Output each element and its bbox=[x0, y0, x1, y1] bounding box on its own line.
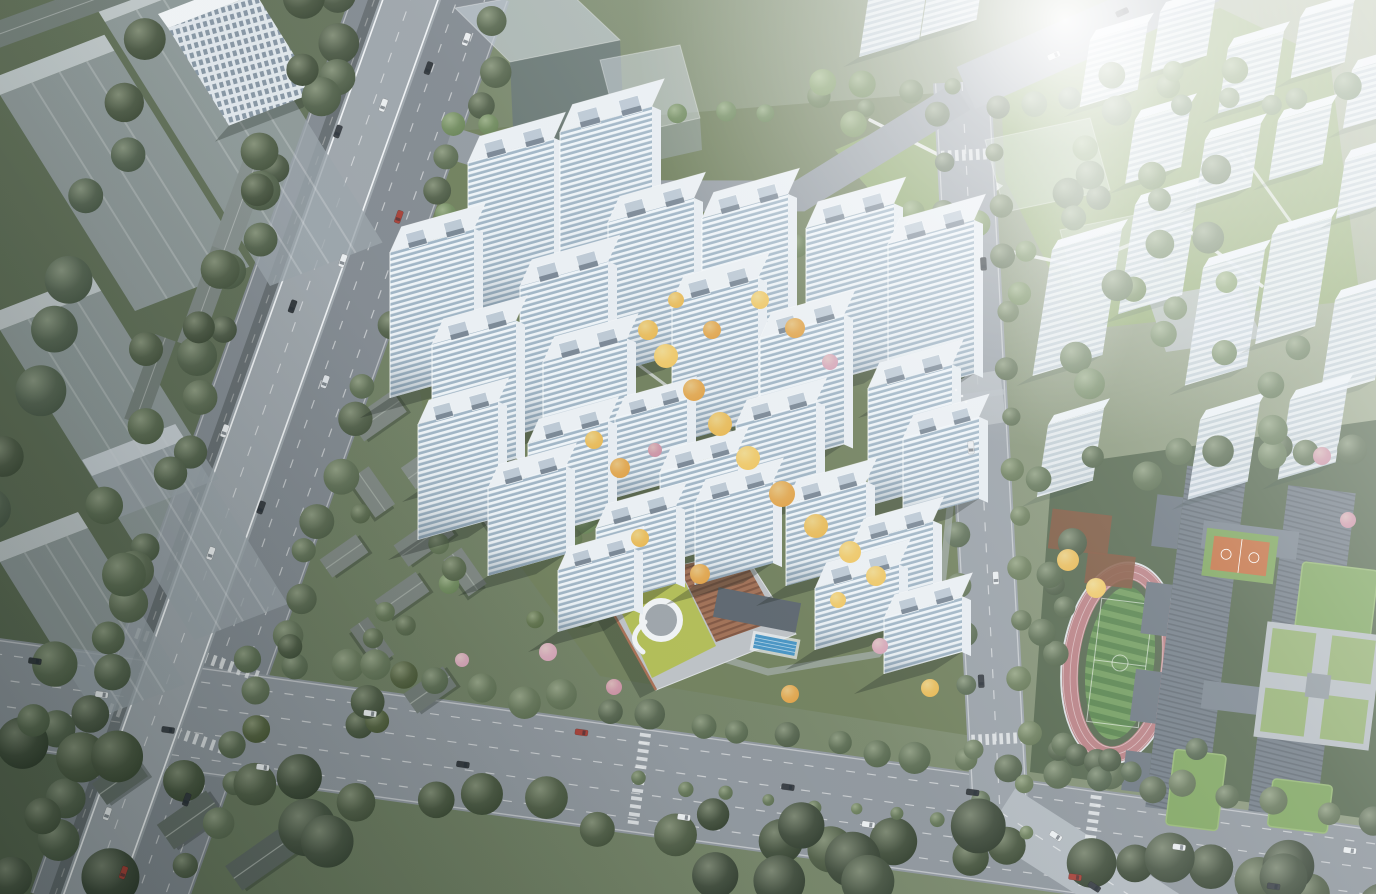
atmosphere-overlay bbox=[0, 0, 1376, 894]
aerial-render-canvas bbox=[0, 0, 1376, 894]
aerial-render-stage bbox=[0, 0, 1376, 894]
